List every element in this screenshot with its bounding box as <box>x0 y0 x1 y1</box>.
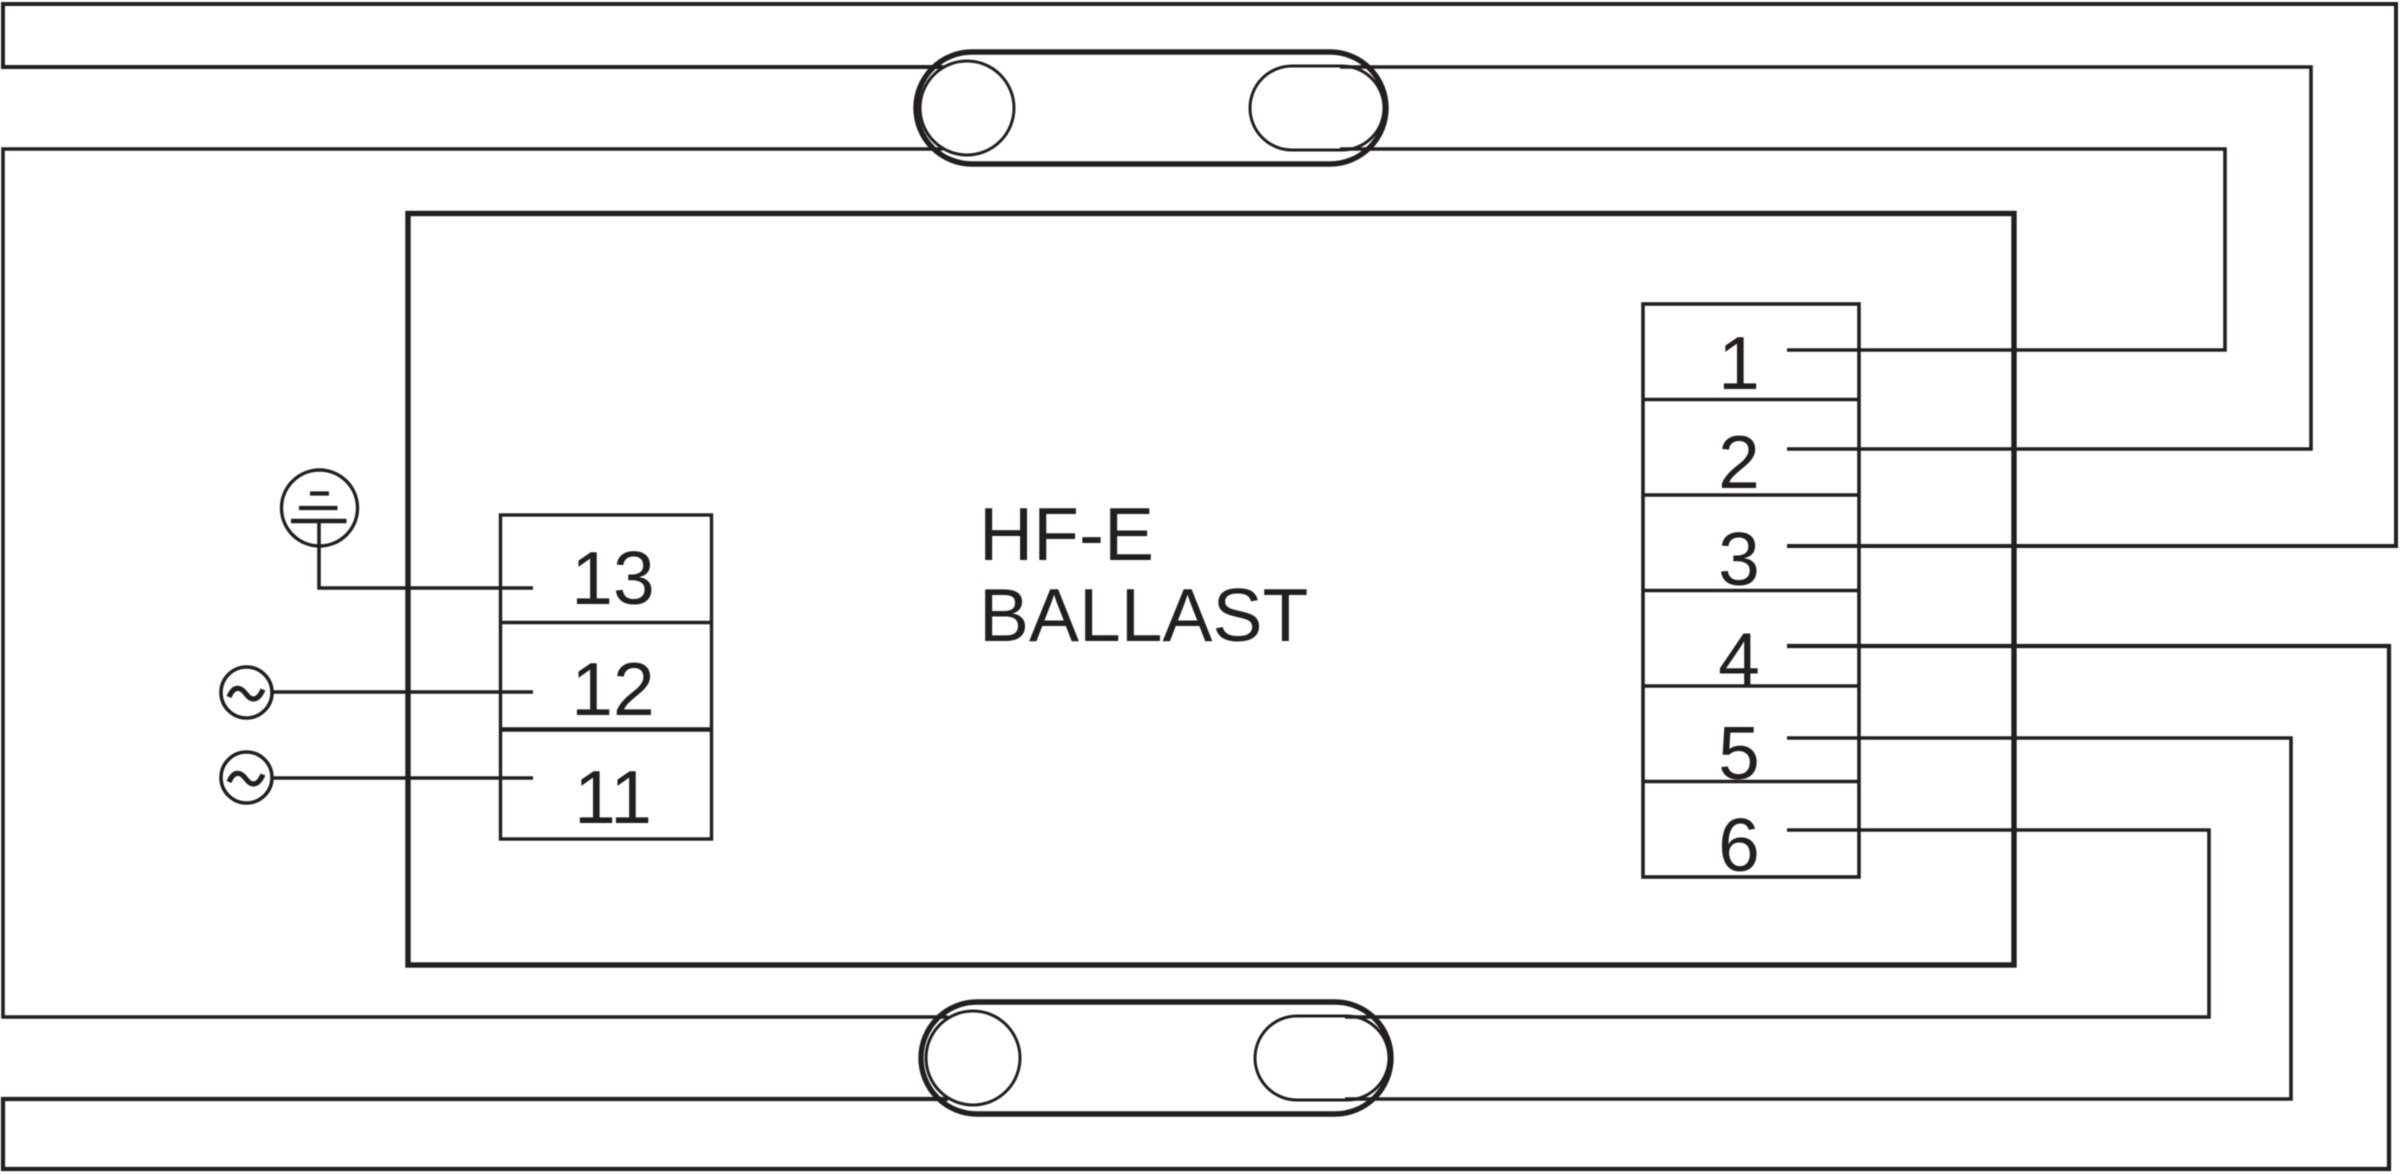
svg-text:5: 5 <box>1718 711 1760 795</box>
svg-text:BALLAST: BALLAST <box>979 573 1308 657</box>
svg-text:12: 12 <box>571 647 654 731</box>
svg-text:2: 2 <box>1718 420 1760 504</box>
svg-text:1: 1 <box>1718 321 1760 405</box>
svg-text:HF-E: HF-E <box>979 492 1154 576</box>
svg-text:4: 4 <box>1718 617 1760 701</box>
svg-text:6: 6 <box>1718 803 1760 887</box>
svg-text:3: 3 <box>1718 517 1760 601</box>
svg-text:13: 13 <box>571 536 654 620</box>
svg-text:11: 11 <box>574 755 652 839</box>
